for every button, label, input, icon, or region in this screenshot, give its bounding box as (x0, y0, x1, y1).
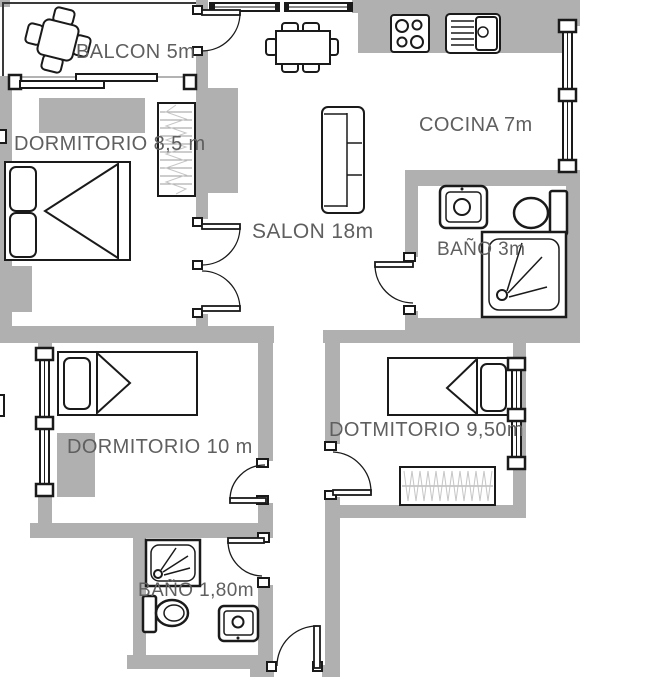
washbasin-icon (219, 606, 258, 641)
window-icon (36, 348, 53, 496)
wall (258, 343, 273, 461)
room-label-dormitorio-1: DORMITORIO 8,5 m (14, 134, 206, 154)
toilet-icon (143, 596, 188, 632)
door-leaf (314, 626, 320, 668)
walls (0, 0, 580, 677)
wall (352, 0, 580, 13)
wardrobe-block-icon (39, 98, 145, 133)
wall (322, 665, 340, 677)
balcony-table-set-icon (19, 1, 97, 79)
door-swing-arc (230, 465, 265, 500)
door-swing-arc (202, 227, 240, 265)
dining-table-icon (276, 31, 330, 64)
wall (30, 523, 273, 538)
room-label-bano-2: BAÑO 1,80m (138, 581, 254, 600)
door-bedroom-2 (230, 459, 268, 504)
wall (127, 655, 265, 669)
dining-set-icon (266, 23, 338, 72)
nightstand-block-icon (8, 266, 32, 312)
door-swing-arc (375, 265, 413, 303)
pillow-icon (10, 167, 36, 211)
door-swing-arc (228, 541, 262, 576)
kitchen-sink-icon (446, 14, 500, 53)
stove-icon (391, 15, 429, 52)
wall-vent (0, 395, 4, 416)
door-leaf (202, 224, 240, 229)
double-bed-icon (5, 162, 130, 260)
door-bathroom-1 (375, 253, 415, 314)
door-swing-arc (333, 452, 371, 492)
door-bedroom-1-upper (193, 218, 240, 269)
door-bathroom-2 (228, 533, 269, 587)
door-swing-arc (202, 13, 240, 51)
toilet-icon (514, 191, 567, 235)
table-icon (36, 18, 80, 62)
wall (405, 170, 580, 186)
pillow-icon (64, 358, 90, 409)
pillow-icon (10, 213, 36, 257)
door-entrance (267, 626, 322, 671)
single-bed-icon (58, 352, 197, 415)
door-swing-arc (277, 626, 317, 666)
wall-pillar (208, 88, 238, 193)
door-leaf (375, 262, 413, 267)
door-leaf (202, 10, 240, 15)
wall (330, 505, 522, 518)
door-swing-arc (202, 271, 240, 309)
room-label-dormitorio-3: DOTMITORIO 9,50m (329, 420, 524, 440)
room-label-bano-1: BAÑO 3m (437, 240, 525, 259)
floor-plan: BALCON 5m DORMITORIO 8,5 m SALON 18m COC… (0, 0, 672, 677)
single-bed-icon (388, 358, 512, 415)
door-leaf (202, 306, 240, 311)
washbasin-icon (440, 186, 487, 228)
sofa-icon (322, 107, 364, 213)
room-label-salon: SALON 18m (252, 221, 373, 242)
wall (325, 497, 340, 677)
wall (323, 330, 580, 343)
door-bedroom-1-lower (193, 271, 240, 317)
room-label-dormitorio-2: DORMITORIO 10 m (67, 437, 253, 457)
wall (258, 585, 273, 665)
sliding-door-icon (9, 74, 196, 89)
door-bedroom-3 (325, 442, 371, 499)
door-leaf (230, 498, 266, 503)
door-leaf (228, 538, 264, 543)
door-balcony (193, 6, 240, 55)
wall (405, 170, 418, 257)
room-label-cocina: COCINA 7m (419, 115, 533, 135)
wardrobe-hatched-icon (400, 467, 495, 505)
pillow-icon (481, 364, 506, 411)
floor-plan-drawing (0, 0, 672, 677)
wall-vent (0, 130, 6, 143)
room-label-balcon: BALCON 5m (76, 42, 195, 62)
door-leaf (333, 490, 371, 495)
